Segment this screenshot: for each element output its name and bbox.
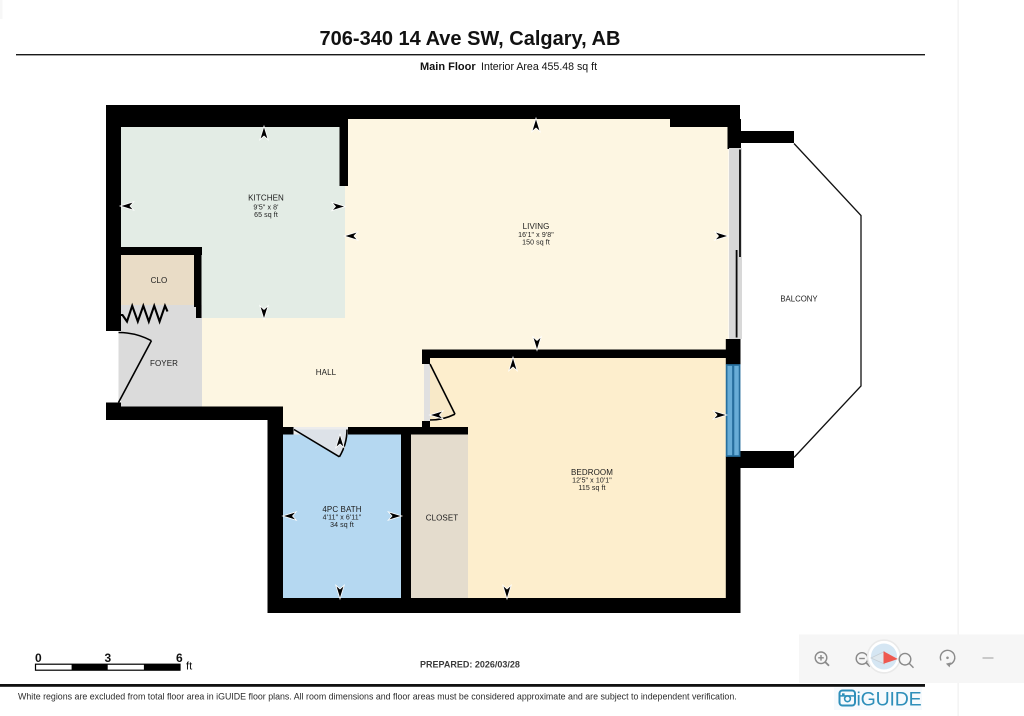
svg-text:65 sq ft: 65 sq ft xyxy=(254,212,278,219)
svg-text:White regions are excluded fro: White regions are excluded from total fl… xyxy=(18,692,737,702)
svg-text:706-340 14 Ave SW, Calgary, AB: 706-340 14 Ave SW, Calgary, AB xyxy=(320,28,621,50)
svg-text:6: 6 xyxy=(176,651,183,665)
svg-text:CLO: CLO xyxy=(151,276,168,285)
svg-text:9'5" x 8': 9'5" x 8' xyxy=(253,205,278,212)
svg-text:BALCONY: BALCONY xyxy=(780,295,818,304)
svg-text:3: 3 xyxy=(104,651,111,665)
svg-text:CLOSET: CLOSET xyxy=(426,514,459,523)
svg-text:150 sq ft: 150 sq ft xyxy=(522,240,550,247)
svg-text:KITCHEN: KITCHEN xyxy=(248,194,284,203)
svg-text:Interior Area 455.48 sq ft: Interior Area 455.48 sq ft xyxy=(481,61,597,73)
svg-text:12'5" x 10'1": 12'5" x 10'1" xyxy=(572,478,612,485)
svg-text:34 sq ft: 34 sq ft xyxy=(330,522,354,529)
svg-text:16'1" x 9'8": 16'1" x 9'8" xyxy=(518,232,554,239)
svg-text:4'11" x 6'11": 4'11" x 6'11" xyxy=(323,515,362,522)
svg-text:iGUIDE: iGUIDE xyxy=(857,689,922,711)
svg-text:115 sq ft: 115 sq ft xyxy=(578,485,605,492)
svg-text:FOYER: FOYER xyxy=(150,359,178,368)
svg-text:0: 0 xyxy=(35,651,42,665)
svg-text:BEDROOM: BEDROOM xyxy=(571,468,613,477)
svg-text:HALL: HALL xyxy=(316,368,337,377)
svg-text:Main Floor: Main Floor xyxy=(420,61,476,73)
svg-text:4PC BATH: 4PC BATH xyxy=(322,505,361,514)
svg-text:ft: ft xyxy=(186,661,193,673)
svg-text:PREPARED: 2026/03/28: PREPARED: 2026/03/28 xyxy=(420,660,520,670)
svg-text:LIVING: LIVING xyxy=(523,222,550,231)
